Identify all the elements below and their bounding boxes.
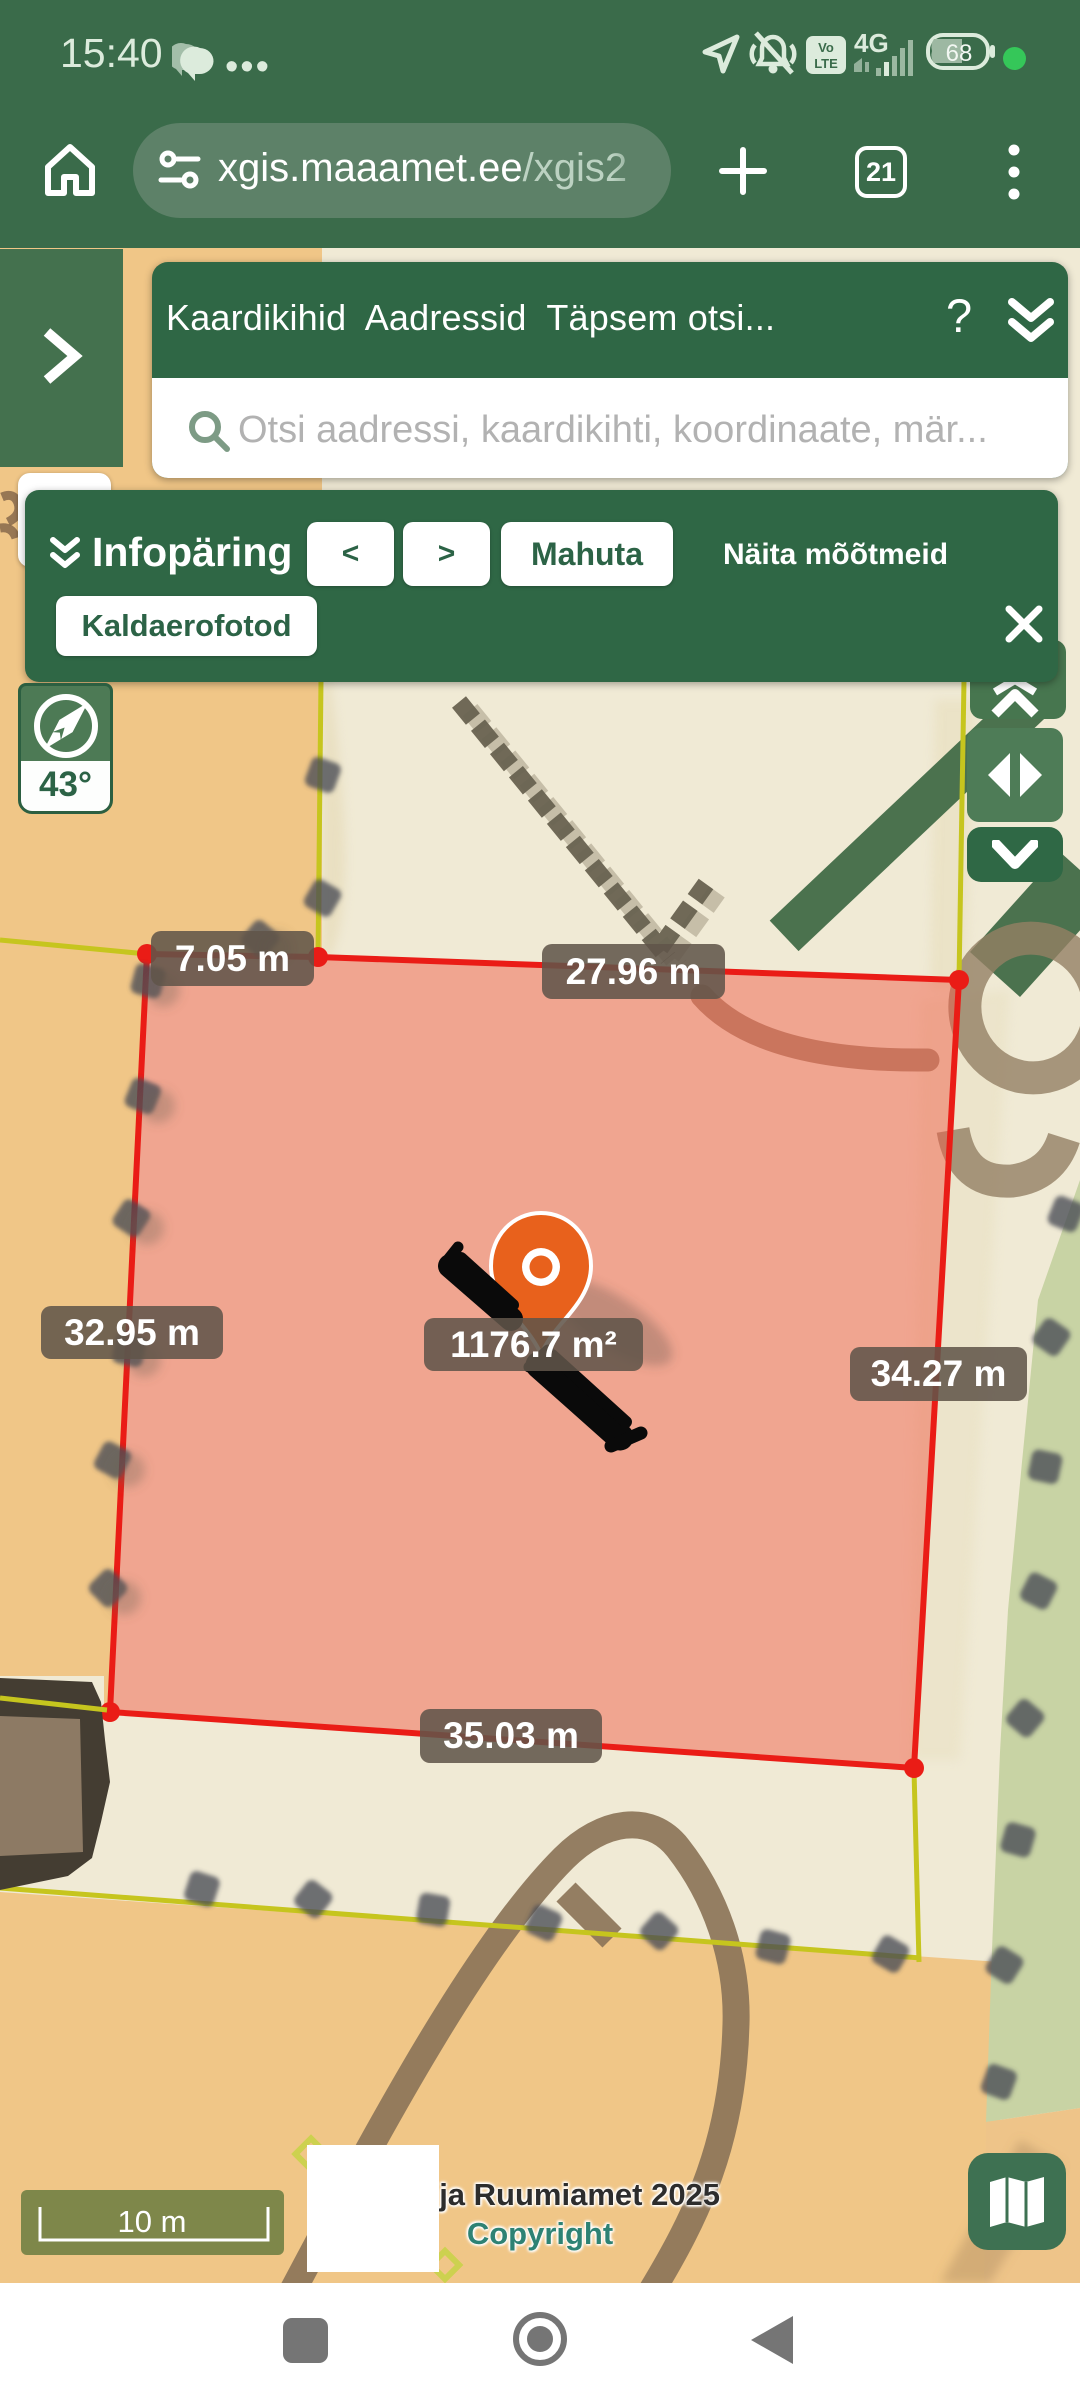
svg-text:68: 68: [946, 40, 973, 67]
svg-text:LTE: LTE: [814, 56, 838, 71]
svg-text:Vo: Vo: [818, 40, 834, 55]
svg-text:10 m: 10 m: [118, 2204, 187, 2239]
svg-text:4G: 4G: [854, 30, 889, 58]
